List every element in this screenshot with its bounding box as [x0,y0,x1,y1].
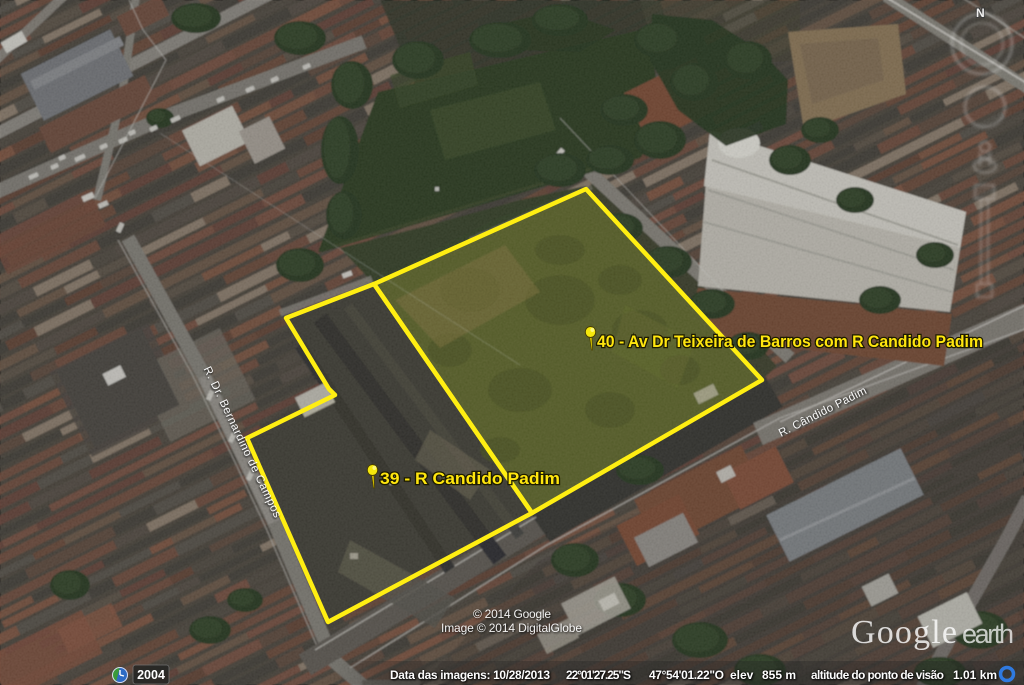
svg-text:855 m: 855 m [762,668,796,682]
svg-text:earth: earth [962,619,1014,649]
svg-text:Image © 2014 DigitalGlobe: Image © 2014 DigitalGlobe [441,621,582,635]
svg-text:altitude do ponto de visão: altitude do ponto de visão [811,668,944,682]
svg-text:Data das imagens: 10/28/2013: Data das imagens: 10/28/2013 [390,668,550,682]
svg-text:1.01 km: 1.01 km [953,668,997,682]
svg-text:40 - Av Dr Teixeira de Barros: 40 - Av Dr Teixeira de Barros com R Cand… [597,333,983,351]
svg-text:47°54'01.22"O: 47°54'01.22"O [649,668,724,682]
svg-text:22°01'27.25"S: 22°01'27.25"S [566,668,631,682]
svg-text:elev: elev [730,668,754,682]
svg-text:2004: 2004 [137,668,165,682]
svg-text:Google: Google [851,614,957,651]
svg-text:© 2014 Google: © 2014 Google [473,607,551,621]
svg-text:39 - R Candido Padim: 39 - R Candido Padim [380,469,560,488]
